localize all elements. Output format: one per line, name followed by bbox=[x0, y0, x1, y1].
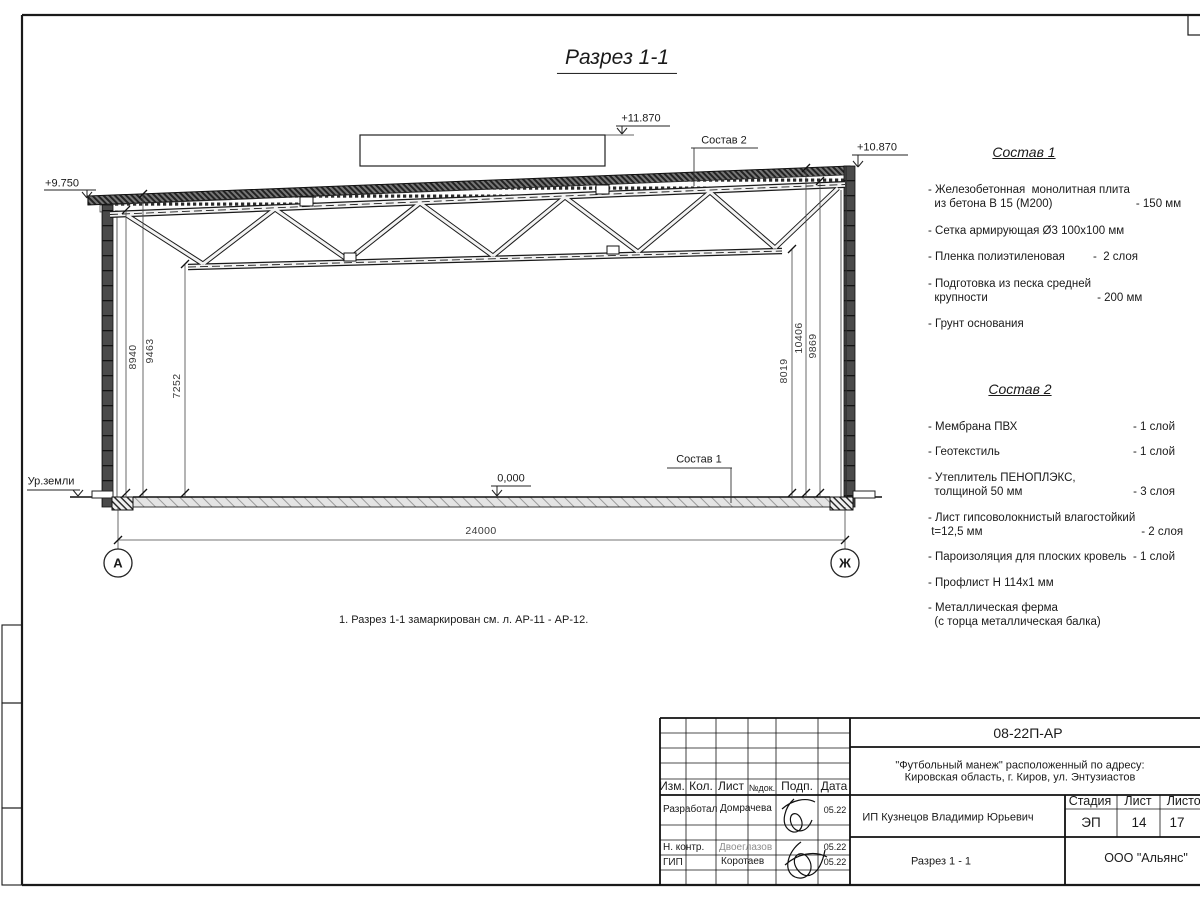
list-item: - Подготовка из песка средней крупности-… bbox=[928, 277, 1138, 306]
dimension-ticks bbox=[114, 164, 849, 544]
left-foundation bbox=[112, 497, 133, 510]
stamp-date-gip: 05.22 bbox=[824, 857, 847, 867]
stamp-client: ИП Кузнецов Владимир Юрьевич bbox=[862, 812, 1033, 825]
stamp-sheet-title: Разрез 1 - 1 bbox=[911, 856, 971, 869]
list-item: - Пароизоляция для плоских кровель- 1 сл… bbox=[928, 550, 1175, 564]
stamp-header-data: Дата bbox=[821, 780, 848, 794]
stamp-doc-number: 08-22П-АР bbox=[993, 725, 1062, 741]
stamp-name-gip: Коротаев bbox=[721, 856, 764, 868]
sheet-note: 1. Разрез 1-1 замаркирован см. л. АР-11 … bbox=[339, 614, 588, 627]
dim-right-10406: 10406 bbox=[793, 322, 805, 353]
list-item: - Металлическая ферма (с торца металличе… bbox=[928, 601, 1175, 630]
corner-stamp-box bbox=[1188, 15, 1200, 35]
stamp-header-kol: Кол. bbox=[689, 780, 713, 794]
dim-right-9869: 9869 bbox=[807, 334, 819, 359]
elevation-right-label: +10.870 bbox=[857, 142, 897, 155]
floor-slab bbox=[133, 497, 830, 507]
roof-structure-box bbox=[360, 135, 605, 166]
stamp-sheet-value: 14 bbox=[1131, 815, 1146, 831]
stamp-company: ООО "Альянс" bbox=[1104, 851, 1188, 865]
stamp-date-ncontrol: 05.22 bbox=[824, 842, 847, 852]
dim-left-8940: 8940 bbox=[127, 345, 139, 370]
list-item: - Геотекстиль- 1 слой bbox=[928, 445, 1175, 459]
composition-2-block: Состав 2 - Мембрана ПВХ- 1 слой - Геотек… bbox=[928, 381, 1175, 641]
stamp-role-developer: Разработал bbox=[663, 804, 717, 816]
list-item: - Сетка армирующая Ø3 100х100 мм bbox=[928, 224, 1138, 238]
stamp-header-izm: Изм. bbox=[659, 780, 685, 794]
drawing-sheet: Разрез 1-1 +9.750 +11.870 +10.870 0,000 … bbox=[0, 0, 1200, 900]
left-stamp-box-2 bbox=[2, 703, 22, 808]
composition-1-title: Состав 1 bbox=[928, 144, 1138, 160]
left-wall bbox=[102, 205, 113, 507]
elevation-floor-label: 0,000 bbox=[497, 473, 525, 486]
stamp-header-sheet: Лист bbox=[1124, 794, 1151, 808]
right-wall bbox=[844, 166, 855, 507]
stamp-name-ncontrol: Двоеглазов bbox=[719, 842, 772, 854]
stamp-header-list: Лист bbox=[718, 780, 744, 794]
axis-label-a: А bbox=[113, 557, 122, 572]
left-stamp-box-1 bbox=[2, 625, 22, 703]
list-item: - Железобетонная монолитная плита из бет… bbox=[928, 183, 1138, 212]
stamp-stadia-value: ЭП bbox=[1081, 815, 1100, 831]
stamp-header-stadia: Стадия bbox=[1069, 794, 1112, 808]
dim-left-9463: 9463 bbox=[144, 339, 156, 364]
signature-control bbox=[785, 842, 827, 878]
list-item: - Лист гипсоволокнистый влагостойкий t=1… bbox=[928, 511, 1175, 540]
stamp-header-sheets: Листов bbox=[1167, 794, 1200, 808]
stamp-role-gip: ГИП bbox=[663, 857, 683, 869]
elevation-parapet-label: +11.870 bbox=[621, 113, 660, 126]
page-title: Разрез 1-1 bbox=[557, 46, 677, 74]
composition-2-title: Состав 2 bbox=[928, 381, 1175, 397]
span-dimension-label: 24000 bbox=[465, 525, 496, 537]
axis-label-zh: Ж bbox=[839, 557, 851, 572]
elevation-left-label: +9.750 bbox=[45, 178, 79, 191]
leader-sostav2-label: Состав 2 bbox=[701, 135, 747, 148]
list-item: - Грунт основания bbox=[928, 317, 1138, 331]
leader-lines bbox=[667, 148, 758, 503]
left-stamp-box-3 bbox=[2, 808, 22, 885]
list-item: - Пленка полиэтиленовая- 2 слоя bbox=[928, 250, 1138, 264]
dim-left-7252: 7252 bbox=[171, 374, 183, 399]
list-item: - Утеплитель ПЕНОПЛЭКС, толщиной 50 мм- … bbox=[928, 471, 1175, 500]
list-item: - Мембрана ПВХ- 1 слой bbox=[928, 420, 1175, 434]
ground-level-label: Ур.земли bbox=[28, 476, 75, 489]
signature-developer bbox=[782, 799, 815, 832]
leader-sostav1-label: Состав 1 bbox=[676, 454, 722, 467]
composition-1-block: Состав 1 - Железобетонная монолитная пли… bbox=[928, 144, 1138, 344]
stamp-project-line1: "Футбольный манеж" расположенный по адре… bbox=[895, 760, 1144, 773]
stamp-name-developer: Домрачева bbox=[720, 803, 772, 815]
stamp-sheets-value: 17 bbox=[1169, 815, 1184, 831]
dim-right-8019: 8019 bbox=[778, 359, 790, 384]
stamp-role-ncontrol: Н. контр. bbox=[663, 842, 704, 854]
list-item: - Профлист Н 114х1 мм bbox=[928, 576, 1175, 590]
stamp-project-line2: Кировская область, г. Киров, ул. Энтузиа… bbox=[905, 772, 1136, 785]
stamp-header-ndok: №док. bbox=[749, 783, 775, 793]
stamp-header-podp: Подп. bbox=[781, 780, 813, 794]
right-foundation bbox=[830, 497, 853, 510]
stamp-date-developer: 05.22 bbox=[824, 805, 847, 815]
signatures bbox=[782, 799, 827, 878]
